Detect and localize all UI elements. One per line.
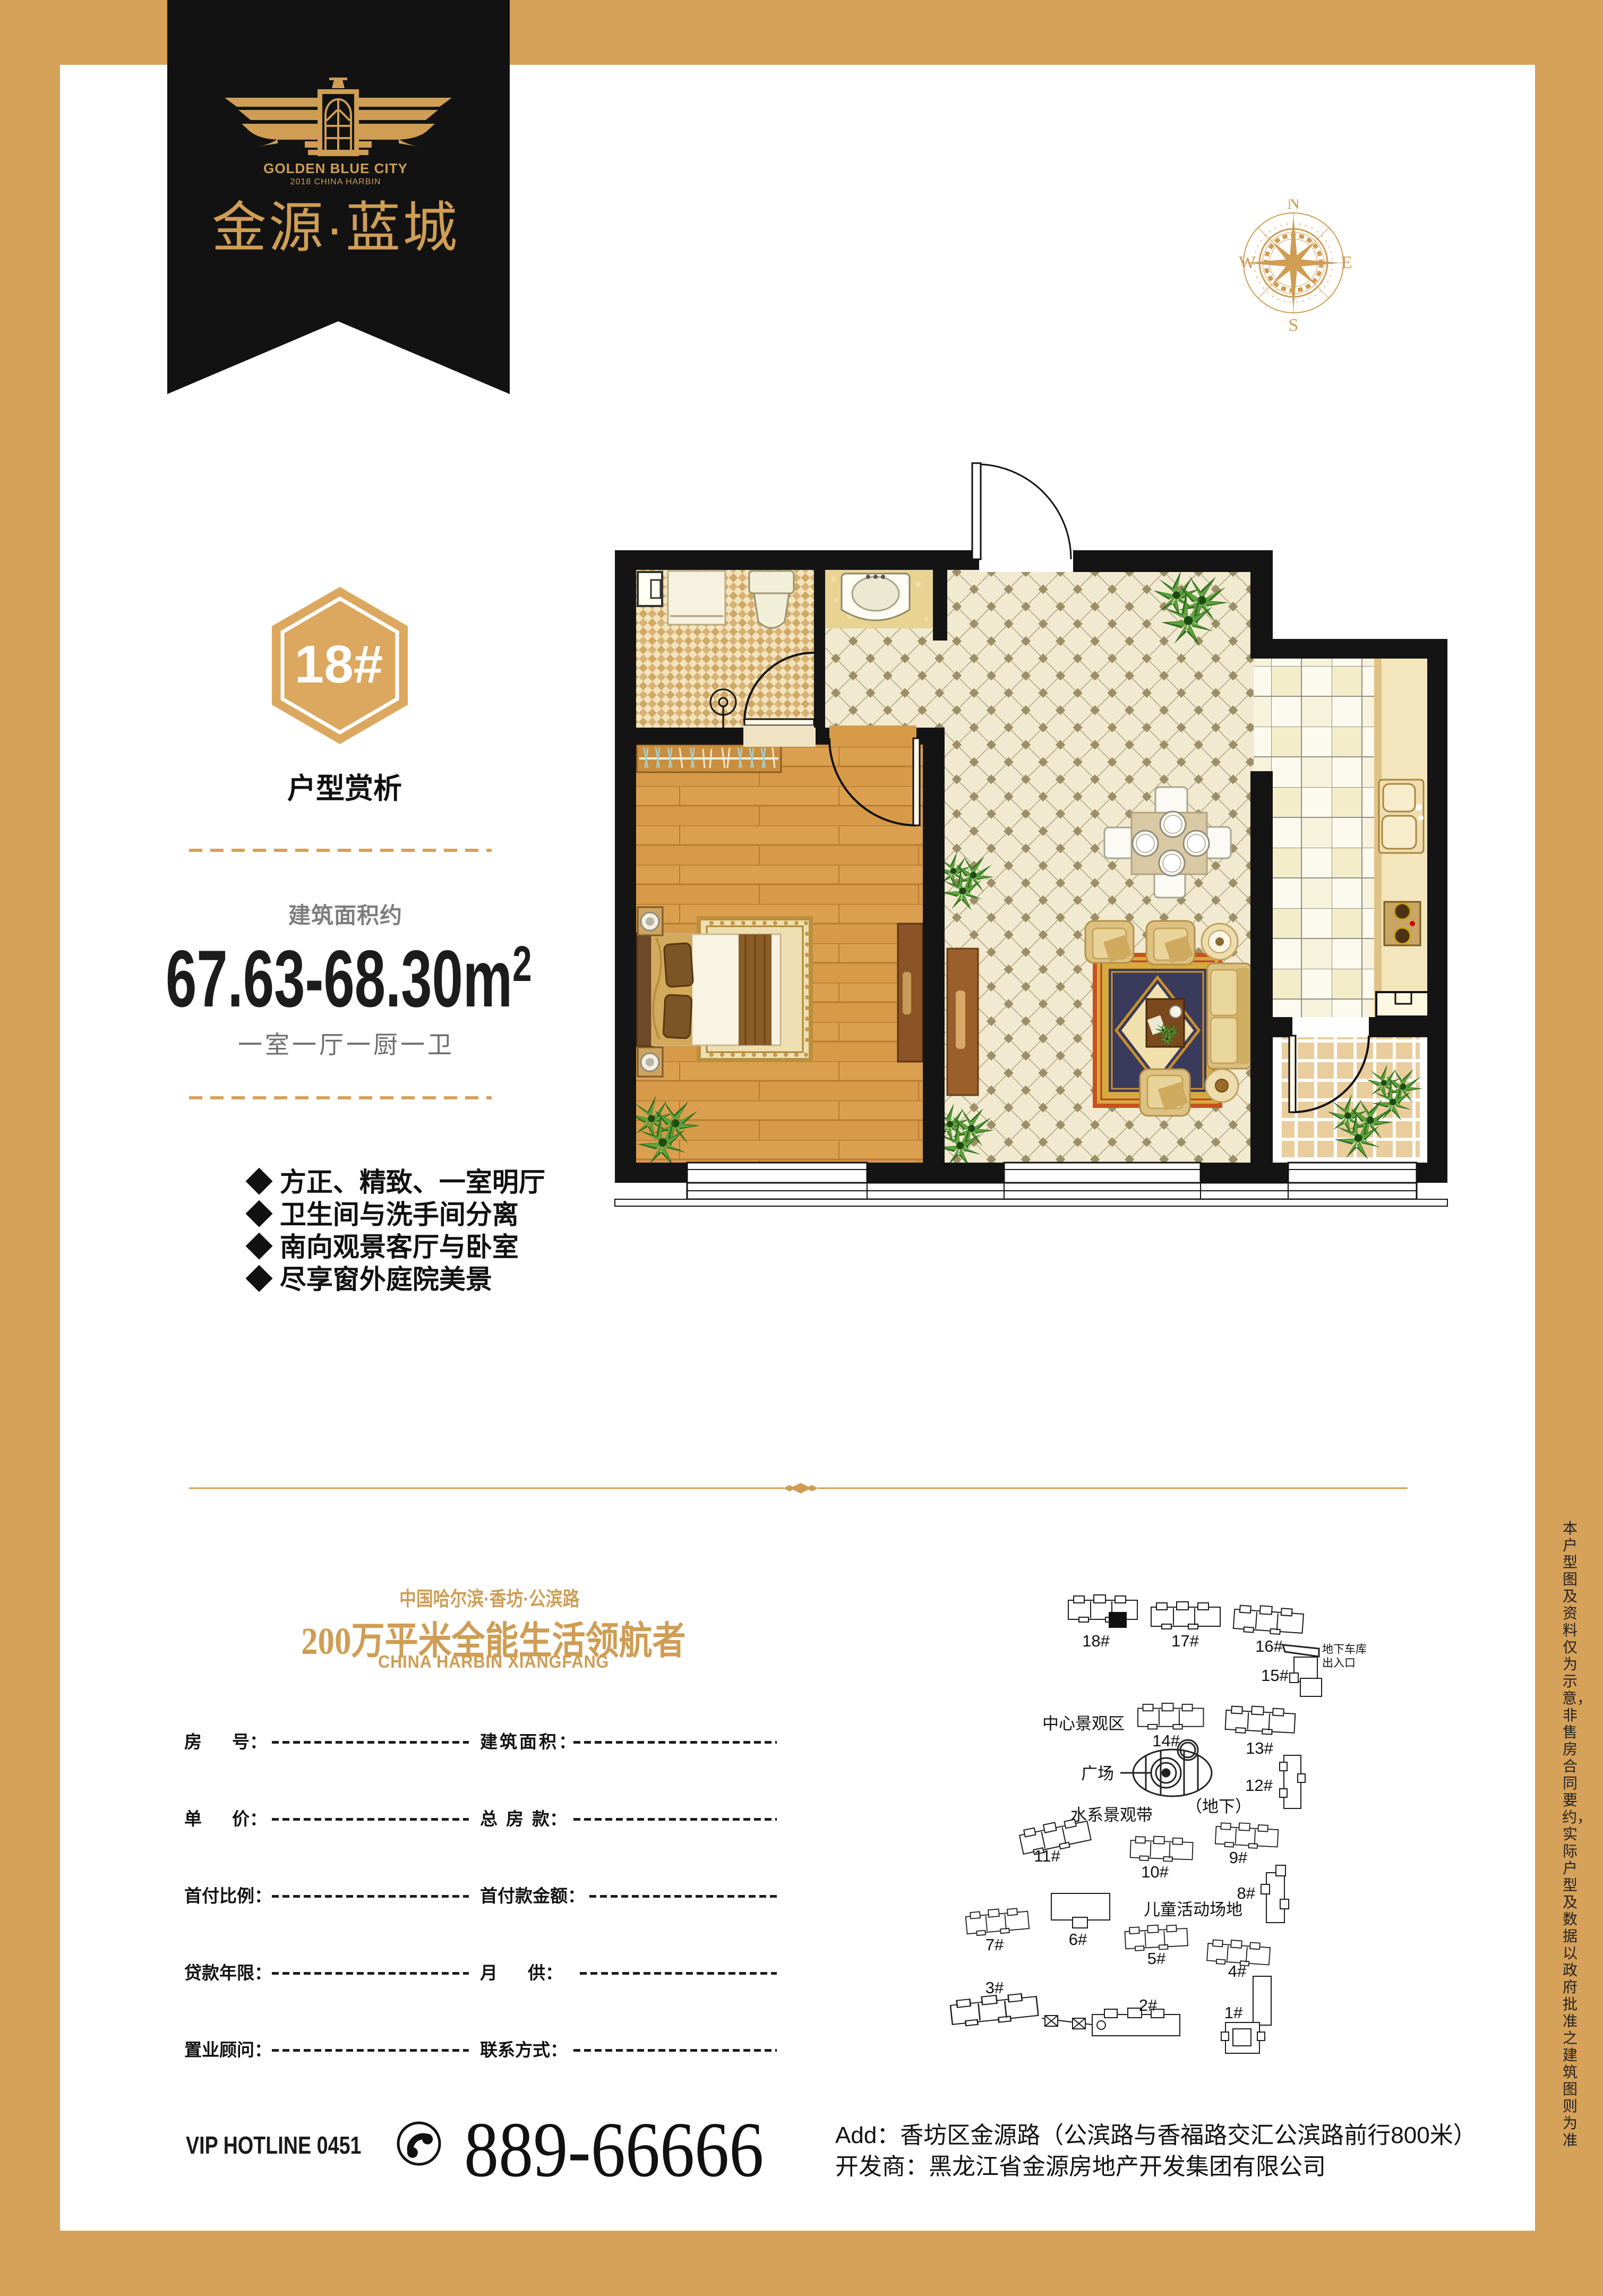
svg-text:9#: 9# (1229, 1848, 1248, 1867)
svg-text:中心景观区: 中心景观区 (1042, 1714, 1125, 1733)
svg-text:18#: 18# (1082, 1632, 1110, 1650)
svg-text:12#: 12# (1245, 1776, 1273, 1795)
svg-text:6#: 6# (1069, 1930, 1087, 1949)
svg-text:15#: 15# (1261, 1666, 1289, 1685)
svg-text:金源·蓝城: 金源·蓝城 (212, 197, 459, 258)
svg-text:地下车库: 地下车库 (1322, 1643, 1367, 1655)
svg-text:13#: 13# (1246, 1739, 1273, 1757)
svg-text:（地下）: （地下） (1186, 1797, 1251, 1816)
svg-text:儿童活动场地: 儿童活动场地 (1144, 1900, 1242, 1919)
svg-text:17#: 17# (1171, 1632, 1199, 1650)
svg-text:广场: 广场 (1081, 1764, 1114, 1783)
svg-text:18#: 18# (295, 635, 383, 694)
svg-text:8#: 8# (1237, 1884, 1256, 1902)
svg-text:W: W (1239, 253, 1256, 272)
svg-text:E: E (1341, 253, 1352, 272)
svg-text:1#: 1# (1224, 2003, 1243, 2022)
svg-text:16#: 16# (1255, 1637, 1283, 1655)
svg-text:5#: 5# (1147, 1949, 1166, 1968)
svg-text:10#: 10# (1141, 1863, 1169, 1881)
svg-text:S: S (1289, 315, 1299, 332)
svg-text:2018 CHINA HARBIN: 2018 CHINA HARBIN (290, 177, 381, 186)
svg-text:出入口: 出入口 (1322, 1657, 1356, 1669)
svg-text:3#: 3# (985, 1978, 1004, 1997)
svg-text:4#: 4# (1228, 1962, 1247, 1981)
svg-text:7#: 7# (985, 1935, 1004, 1954)
svg-text:11#: 11# (1034, 1847, 1060, 1865)
svg-text:GOLDEN BLUE CITY: GOLDEN BLUE CITY (263, 160, 408, 176)
svg-text:2#: 2# (1139, 1996, 1158, 2015)
svg-text:N: N (1287, 199, 1300, 213)
svg-text:14#: 14# (1152, 1731, 1180, 1750)
